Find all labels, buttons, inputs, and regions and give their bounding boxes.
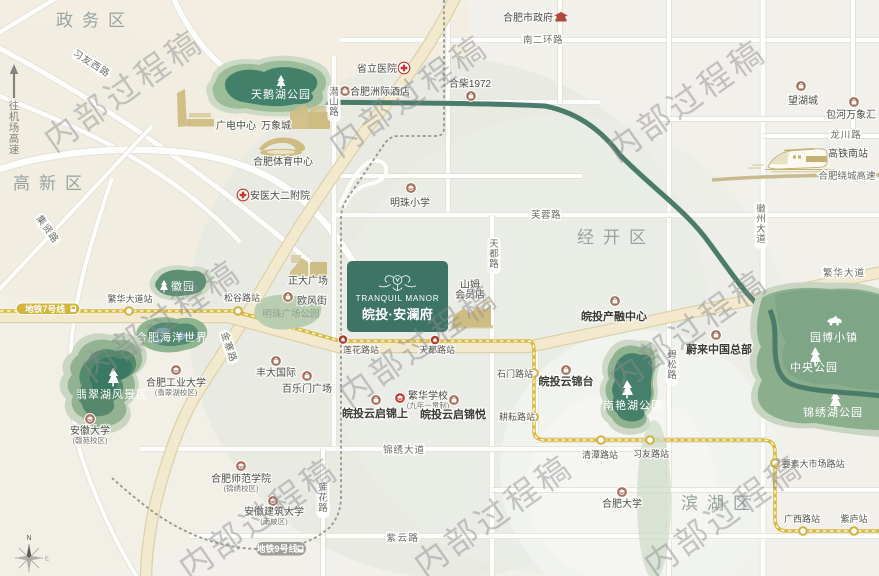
svg-text:明珠小学: 明珠小学: [390, 196, 430, 209]
svg-text:包河万象汇: 包河万象汇: [826, 108, 876, 121]
svg-text:潜山路: 潜山路: [329, 86, 339, 118]
svg-text:徽州大道: 徽州大道: [756, 203, 766, 245]
svg-text:皖投产融中心: 皖投产融中心: [581, 309, 647, 323]
svg-text:清潭路站: 清潭路站: [582, 449, 618, 460]
svg-text:高铁南站: 高铁南站: [828, 147, 868, 160]
svg-text:欧风街: 欧风街: [297, 294, 327, 307]
svg-text:百乐门广场: 百乐门广场: [282, 382, 332, 395]
svg-text:广西路站: 广西路站: [784, 513, 820, 524]
svg-text:经开区: 经开区: [577, 228, 655, 247]
svg-text:习友路站: 习友路站: [633, 448, 669, 459]
svg-text:石门路站: 石门路站: [497, 368, 533, 379]
svg-text:合肥绕城高速: 合肥绕城高速: [818, 170, 876, 182]
svg-text:中央公园: 中央公园: [790, 361, 838, 374]
svg-text:E: E: [45, 557, 49, 563]
svg-text:往机场高速: 往机场高速: [9, 99, 20, 156]
svg-text:正大广场: 正大广场: [288, 274, 328, 287]
svg-text:万象城: 万象城: [261, 120, 291, 132]
svg-text:TRANQUIL MANOR: TRANQUIL MANOR: [356, 294, 440, 303]
svg-text:望湖城: 望湖城: [788, 94, 818, 107]
svg-text:园博小镇: 园博小镇: [810, 330, 858, 344]
svg-text:皖投云锦台: 皖投云锦台: [539, 374, 594, 388]
svg-text:N: N: [26, 535, 31, 542]
svg-text:翡翠湖风景区: 翡翠湖风景区: [76, 388, 148, 401]
svg-text:合肥市政府: 合肥市政府: [503, 11, 553, 24]
svg-text:繁华大道站: 繁华大道站: [107, 293, 152, 304]
svg-text:安医大二附院: 安医大二附院: [250, 189, 310, 202]
svg-text:合肥体育中心: 合肥体育中心: [253, 155, 313, 168]
svg-text:地铁9号线: 地铁9号线: [256, 543, 297, 554]
svg-text:高新区: 高新区: [13, 174, 91, 193]
svg-text:明珠广场公园: 明珠广场公园: [262, 308, 319, 320]
svg-text:繁华大道: 繁华大道: [823, 267, 865, 279]
svg-text:紫庐站: 紫庐站: [840, 513, 867, 524]
svg-text:天都路: 天都路: [489, 239, 499, 270]
svg-text:紫云路: 紫云路: [386, 532, 419, 544]
svg-text:合肥大学: 合肥大学: [602, 497, 642, 510]
svg-text:丰大国际: 丰大国际: [256, 366, 296, 379]
svg-text:龙川路: 龙川路: [830, 129, 862, 141]
svg-text:天鹅湖公园: 天鹅湖公园: [251, 87, 311, 101]
svg-text:南艳湖公园: 南艳湖公园: [603, 398, 663, 412]
svg-text:(锦绣校区): (锦绣校区): [224, 483, 259, 493]
svg-text:锦绣湖公园: 锦绣湖公园: [803, 405, 863, 419]
svg-text:省立医院: 省立医院: [357, 62, 397, 75]
svg-text:(翡翠湖校区): (翡翠湖校区): [155, 387, 198, 397]
svg-text:地铁7号线: 地铁7号线: [25, 303, 65, 314]
svg-text:政务区: 政务区: [56, 11, 134, 30]
svg-text:广电中心: 广电中心: [216, 119, 256, 132]
svg-text:芙蓉路: 芙蓉路: [531, 209, 561, 221]
svg-text:锦绣大道: 锦绣大道: [383, 444, 425, 456]
svg-text:南二环路: 南二环路: [523, 34, 563, 46]
svg-text:(磬苑校区): (磬苑校区): [73, 435, 108, 445]
svg-text:皖投云启锦悦: 皖投云启锦悦: [420, 407, 486, 421]
svg-text:耕耘路站: 耕耘路站: [499, 411, 535, 422]
